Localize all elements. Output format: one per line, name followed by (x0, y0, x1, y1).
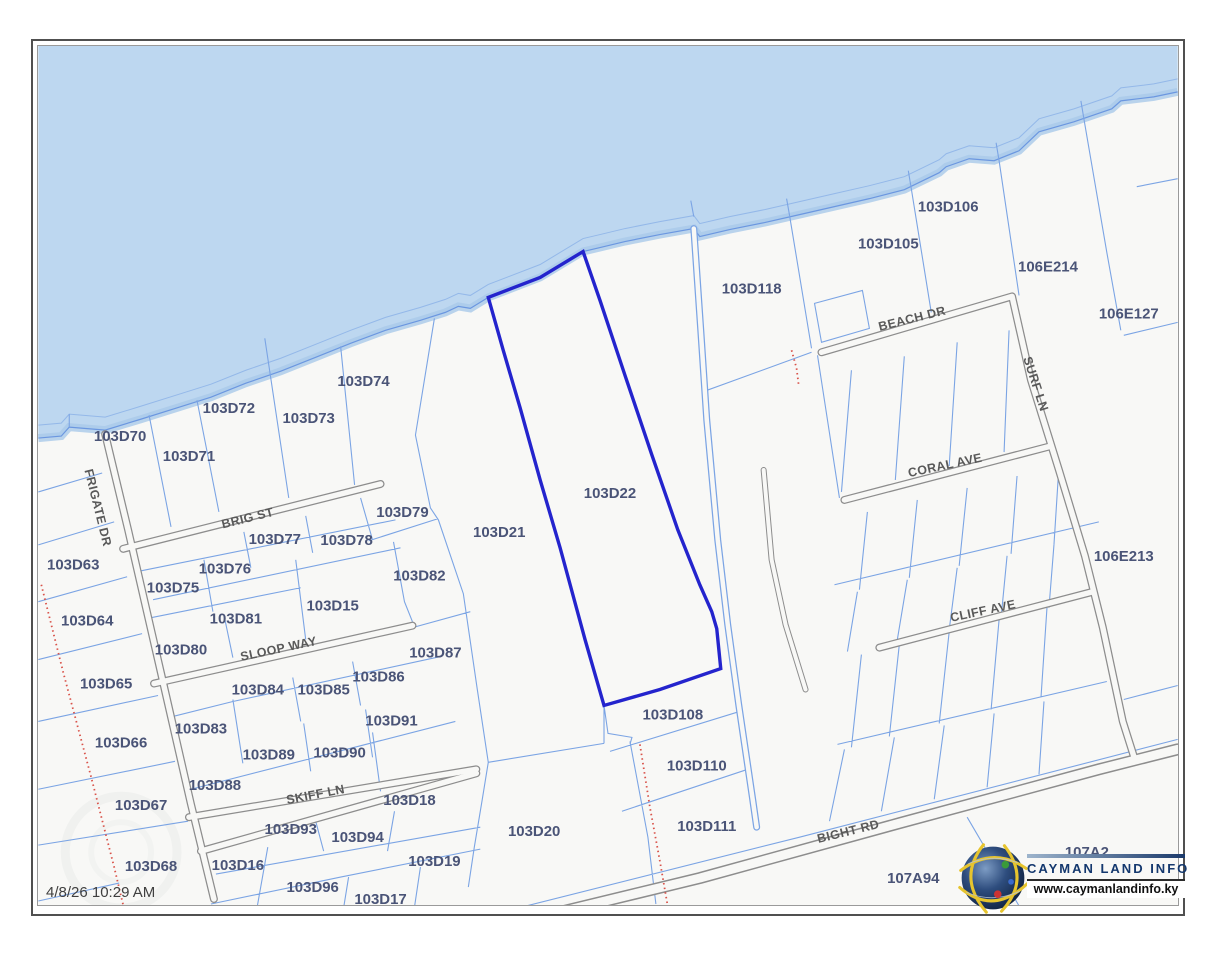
parcel-label-103D96: 103D96 (286, 879, 338, 896)
parcel-label-103D64: 103D64 (61, 613, 114, 630)
parcel-label-106E127: 106E127 (1099, 305, 1159, 322)
parcel-label-103D111: 103D111 (677, 818, 736, 835)
parcel-label-103D66: 103D66 (95, 734, 147, 751)
parcel-label-106E213: 106E213 (1094, 548, 1154, 565)
parcel-label-103D88: 103D88 (189, 777, 241, 794)
parcel-label-103D91: 103D91 (365, 712, 417, 729)
parcel-label-103D71: 103D71 (163, 448, 215, 465)
logo-website[interactable]: www.caymanlandinfo.ky (1027, 879, 1185, 898)
parcel-label-103D63: 103D63 (47, 557, 99, 574)
parcel-label-103D21: 103D21 (473, 524, 525, 541)
parcel-label-103D68: 103D68 (125, 858, 177, 875)
parcel-label-103D72: 103D72 (203, 400, 255, 417)
parcel-label-103D19: 103D19 (408, 853, 460, 870)
parcel-label-103D110: 103D110 (667, 757, 727, 774)
parcel-label-103D106: 103D106 (918, 199, 979, 216)
timestamp: 4/8/26 10:29 AM (46, 884, 155, 901)
parcel-label-103D90: 103D90 (313, 744, 365, 761)
logo-divider (1027, 854, 1185, 858)
parcel-label-103D76: 103D76 (199, 561, 251, 578)
parcel-label-103D65: 103D65 (80, 675, 132, 692)
cadastral-map[interactable]: 103D63103D64103D65103D66103D67103D68103D… (37, 45, 1179, 906)
parcel-label-103D82: 103D82 (393, 568, 445, 585)
logo-title: CAYMAN LAND INFO (1027, 861, 1185, 876)
parcel-label-103D75: 103D75 (147, 580, 199, 597)
parcel-label-107A94: 107A94 (887, 870, 940, 887)
globe-icon (955, 840, 1031, 916)
parcel-label-103D87: 103D87 (409, 645, 461, 662)
parcel-label-103D86: 103D86 (352, 668, 404, 685)
parcel-label-103D70: 103D70 (94, 428, 146, 445)
parcel-label-103D74: 103D74 (337, 373, 390, 390)
parcel-label-103D89: 103D89 (243, 746, 295, 763)
parcel-label-103D81: 103D81 (210, 611, 262, 628)
parcel-label-106E214: 106E214 (1018, 258, 1079, 275)
parcel-label-103D118: 103D118 (722, 280, 782, 297)
cayman-land-info-logo: CAYMAN LAND INFO www.caymanlandinfo.ky (955, 838, 1187, 914)
parcel-label-103D93: 103D93 (265, 821, 317, 838)
parcel-label-103D94: 103D94 (331, 829, 384, 846)
parcel-label-103D67: 103D67 (115, 797, 167, 814)
parcel-label-103D85: 103D85 (297, 681, 349, 698)
parcel-label-103D73: 103D73 (283, 410, 335, 427)
parcel-label-103D83: 103D83 (175, 720, 227, 737)
parcel-label-103D77: 103D77 (249, 531, 301, 548)
parcel-label-103D84: 103D84 (232, 681, 285, 698)
parcel-label-103D20: 103D20 (508, 823, 560, 840)
parcel-label-103D78: 103D78 (320, 532, 372, 549)
parcel-label-103D16: 103D16 (212, 857, 264, 874)
parcel-label-103D17: 103D17 (354, 891, 406, 906)
parcel-label-103D80: 103D80 (155, 642, 207, 659)
parcel-label-103D22: 103D22 (584, 485, 636, 502)
parcel-label-103D15: 103D15 (306, 598, 358, 615)
parcel-label-103D108: 103D108 (642, 706, 703, 723)
parcel-label-103D18: 103D18 (383, 792, 435, 809)
cayman-land-info-map-page: 103D63103D64103D65103D66103D67103D68103D… (0, 0, 1216, 954)
parcel-label-103D105: 103D105 (858, 235, 919, 252)
parcel-label-103D79: 103D79 (376, 504, 428, 521)
